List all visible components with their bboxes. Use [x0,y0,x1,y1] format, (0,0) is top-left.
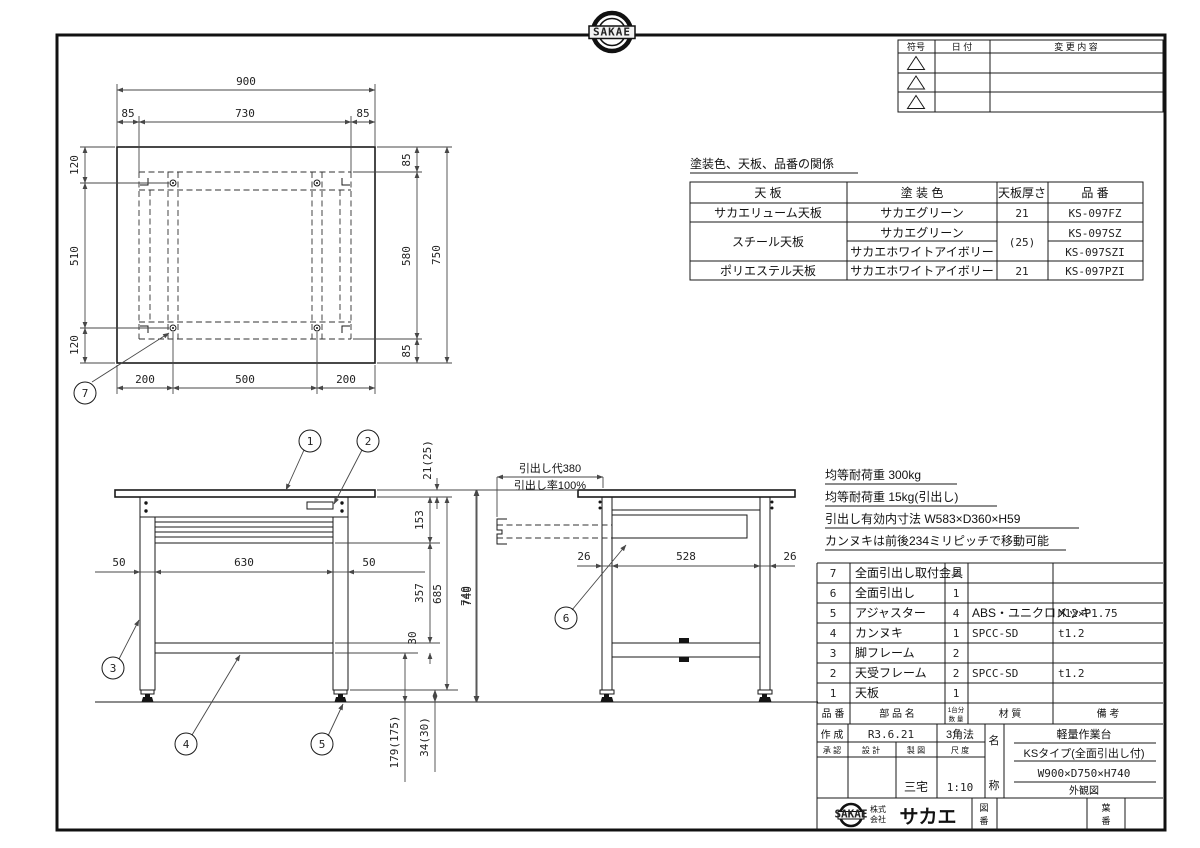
plan-dim-200r: 200 [336,373,356,386]
drawer-side-profile [612,515,747,538]
tb-draft-name: 三宅 [904,779,928,794]
paint-r1-thickness: 21 [1015,207,1028,220]
parts-h-qty1: 1台分 [948,705,965,714]
balloon-2: 2 [334,430,379,504]
side-front-foot [600,690,614,702]
plan-dim-85l: 85 [121,107,134,120]
side-dim-528: 528 [676,550,696,563]
paint-h-color: 塗 装 色 [901,185,944,200]
tb-drawing-kind: 外観図 [1069,784,1099,797]
svg-text:1: 1 [953,687,960,700]
svg-text:5: 5 [319,738,326,751]
note-drawer-load: 均等耐荷重 15kg(引出し) [825,490,958,504]
svg-text:1: 1 [953,587,960,600]
drawer-latch-handle [307,502,333,509]
side-front-leg [602,497,612,690]
tb-approved-label: 承 認 [823,745,841,755]
side-view: 引出し代380 引出し率100% 740 26 528 26 6 [459,461,797,702]
revision-triangle-1 [908,57,925,70]
side-dim-26r: 26 [783,550,796,563]
svg-text:M12×P1.75: M12×P1.75 [1058,607,1118,620]
paint-r2-thickness: (25) [1009,236,1036,249]
front-view: 50 630 50 21(25) 153 357 30 685 740 179(… [95,430,818,782]
paint-r2-part-a: KS-097SZ [1069,227,1122,240]
svg-text:1: 1 [307,435,314,448]
paint-r2-part-b: KS-097SZI [1065,246,1125,259]
svg-text:7: 7 [830,567,837,580]
spec-notes: 均等耐荷重 300kg 均等耐荷重 15kg(引出し) 引出し有効内寸法 W58… [825,468,1079,550]
svg-text:2: 2 [365,435,372,448]
revision-triangle-3 [908,96,925,109]
svg-text:6: 6 [830,587,837,600]
parts-row-2: 2 天受フレーム 2 SPCC-SD t1.2 [830,666,1085,680]
balloon-3: 3 [102,620,139,679]
plan-dim-900: 900 [236,75,256,88]
revision-table: 符号 日 付 変 更 内 容 [898,40,1163,112]
plan-dim-85r: 85 [356,107,369,120]
balloon-7: 7 [74,333,169,404]
paint-h-thickness: 天板厚さ [998,186,1046,200]
plan-dim-85b: 85 [400,344,413,357]
revision-col-symbol: 符号 [907,41,925,52]
parts-row-6: 6 全面引出し 1 [830,585,960,600]
svg-text:3: 3 [830,647,837,660]
front-left-foot [141,690,154,702]
tb-name-char2: 称 [989,778,1000,792]
paint-r2-color-a: サカエグリーン [880,226,963,240]
company-logo: SAKAE [834,804,867,826]
parts-h-remarks: 備 考 [1097,707,1120,720]
svg-text:全面引出し: 全面引出し [855,585,915,600]
svg-text:SPCC-SD: SPCC-SD [972,627,1018,640]
front-dim-50l: 50 [112,556,125,569]
plan-dim-120b: 120 [68,335,81,355]
svg-text:天板: 天板 [855,686,879,700]
svg-text:天受フレーム: 天受フレーム [855,666,927,680]
svg-text:2: 2 [830,667,837,680]
stamp-logo-text: SAKAE [593,26,631,39]
paint-r2-color-b: サカエホワイトアイボリー [850,245,993,259]
revision-triangle-2 [908,76,925,89]
side-dim-740: 740 [459,586,472,606]
front-dim-21: 21(25) [421,440,434,480]
paint-r1-color: サカエグリーン [880,206,963,220]
tb-created-date: R3.6.21 [868,728,914,741]
parts-row-4: 4 カンヌキ 1 SPCC-SD t1.2 [830,626,1085,640]
plan-dim-730: 730 [235,107,255,120]
plan-dim-85t: 85 [400,153,413,166]
revision-col-date: 日 付 [952,42,973,52]
note-drawer-size: 引出し有効内寸法 W583×D360×H59 [825,511,1021,526]
side-lower-rail [612,643,760,657]
paint-table-title: 塗装色、天板、品番の関係 [690,156,834,171]
paint-r3-color: サカエホワイトアイボリー [850,264,993,278]
tb-created-label: 作 成 [821,729,844,741]
parts-row-1: 1 天板 1 [830,686,960,700]
front-dim-630: 630 [234,556,254,569]
plan-dim-510: 510 [68,246,81,266]
drawer-front-slats [155,517,333,543]
front-dim-685: 685 [431,584,444,604]
tb-draft-label: 製 図 [907,745,925,755]
svg-text:3: 3 [110,662,117,675]
balloon-4: 4 [175,655,240,755]
svg-text:2: 2 [953,647,960,660]
title-block: 作 成 R3.6.21 3角法 承 認 設 計 製 図 尺 度 三宅 1:10 … [817,724,1163,830]
plan-dim-580: 580 [400,246,413,266]
tb-company-line2: 会社 [870,814,886,824]
svg-text:4: 4 [830,627,837,640]
paint-r3-thickness: 21 [1015,265,1028,278]
tb-projection: 3角法 [946,727,974,741]
side-rear-leg [760,497,770,690]
drawer-pull-hook [497,519,507,544]
parts-row-5: 5 アジャスター 4 ABS・ユニクロメッキ M12×P1.75 [830,606,1118,620]
svg-text:4: 4 [953,607,960,620]
front-right-foot [334,690,347,702]
tb-name-char1: 名 [989,733,1000,747]
svg-text:アジャスター: アジャスター [855,606,926,620]
note-load: 均等耐荷重 300kg [825,468,921,482]
svg-text:t1.2: t1.2 [1058,627,1085,640]
drawing-page: SAKAE 符号 日 付 変 更 内 容 塗装色、天板、品番の関係 天 板 塗 … [0,0,1200,848]
svg-text:5: 5 [830,607,837,620]
front-dim-153: 153 [413,510,426,530]
plan-dim-500: 500 [235,373,255,386]
tb-scale-value: 1:10 [947,781,974,794]
paint-r1-top: サカエリューム天板 [714,206,822,220]
svg-text:1: 1 [953,627,960,640]
parts-h-qty2: 数 量 [949,714,964,723]
svg-text:7: 7 [82,387,89,400]
parts-h-name: 部 品 名 [879,707,915,720]
tb-scale-label: 尺 度 [951,745,969,755]
parts-h-material: 材 質 [999,707,1022,720]
revision-col-change: 変 更 内 容 [1054,41,1098,52]
side-dim-26l: 26 [577,550,590,563]
balloon-1: 1 [286,430,321,490]
svg-text:カンヌキ: カンヌキ [855,626,903,640]
svg-text:1: 1 [830,687,837,700]
parts-row-3: 3 脚フレーム 2 [830,645,960,660]
side-rear-foot [758,690,772,702]
plan-dim-200l: 200 [135,373,155,386]
paint-h-part: 品 番 [1081,186,1108,200]
note-kannuki: カンヌキは前後234ミリピッチで移動可能 [825,533,1049,548]
svg-text:SPCC-SD: SPCC-SD [972,667,1018,680]
company-stamp: SAKAE [589,13,635,51]
paint-h-top: 天 板 [754,186,781,200]
tb-product-size: W900×D750×H740 [1038,767,1131,780]
plan-view: 900 85 730 85 120 510 120 85 580 85 750 … [68,75,452,404]
tb-company-line1: 株式 [870,804,886,814]
svg-text:6: 6 [563,612,570,625]
side-note-stroke: 引出し代380 [519,461,581,475]
plan-dim-120t: 120 [68,155,81,175]
tb-sheet-char1: 葉 [1101,802,1110,813]
svg-text:2: 2 [953,567,960,580]
parts-h-no: 品 番 [822,708,845,720]
tb-design-label: 設 計 [862,745,880,755]
balloon-5: 5 [311,704,343,755]
svg-text:t1.2: t1.2 [1058,667,1085,680]
svg-text:SAKAE: SAKAE [834,808,867,821]
paint-r2-top: スチール天板 [732,235,804,249]
front-dim-30: 30 [406,631,419,644]
front-dim-179: 179(175) [388,716,401,769]
tb-product-name: 軽量作業台 [1057,727,1112,741]
paint-table: 塗装色、天板、品番の関係 天 板 塗 装 色 天板厚さ 品 番 サカエリューム天… [690,156,1143,280]
front-dim-50r: 50 [362,556,375,569]
tb-fig-char1: 図 [979,803,988,813]
paint-r1-part: KS-097FZ [1069,207,1122,220]
front-left-leg [140,517,155,690]
paint-r3-part: KS-097PZI [1065,265,1125,278]
paint-r3-top: ポリエステル天板 [720,264,816,278]
svg-text:4: 4 [183,738,190,751]
tb-fig-char2: 番 [979,815,988,826]
plan-dim-750: 750 [430,245,443,265]
tb-product-type: KSタイプ(全面引出し付) [1024,746,1145,760]
front-lower-rail [155,643,333,653]
tb-company-name: サカエ [899,806,956,828]
tb-sheet-char2: 番 [1101,815,1110,826]
svg-text:全面引出し取付金具: 全面引出し取付金具 [855,565,963,580]
front-dim-34: 34(30) [418,717,431,757]
front-dim-357: 357 [413,583,426,603]
mounting-holes [170,180,320,331]
svg-text:2: 2 [953,667,960,680]
svg-text:脚フレーム: 脚フレーム [855,645,915,660]
